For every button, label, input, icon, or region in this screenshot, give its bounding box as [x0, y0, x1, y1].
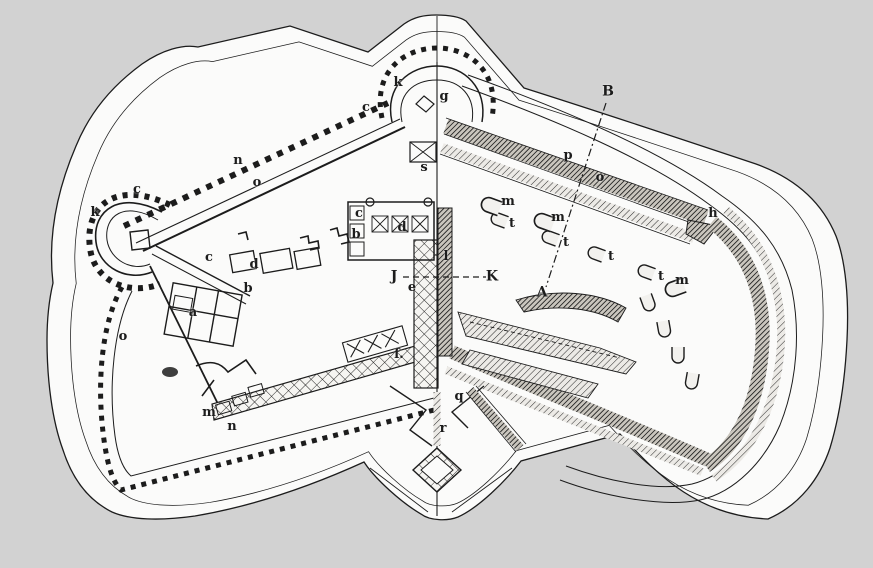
engraving-canvas: kcnokcgBposcbdhmmttttmlJKeAcdbaomnf.qr [0, 0, 873, 568]
fort-plan-figure [0, 0, 873, 568]
